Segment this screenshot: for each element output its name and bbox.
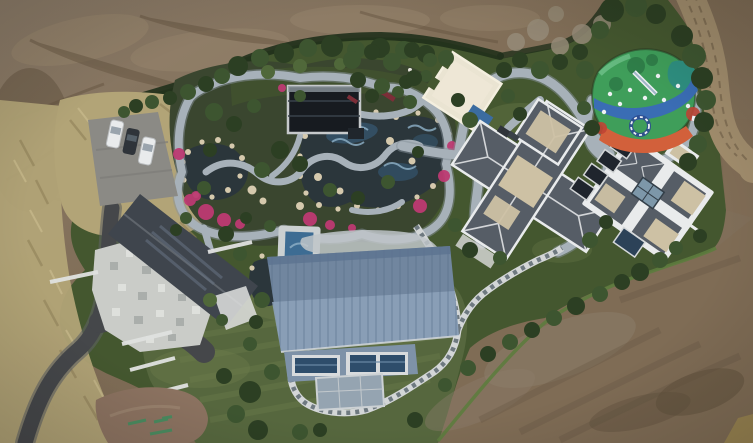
vignette (0, 0, 753, 443)
aerial-photo (0, 0, 753, 443)
